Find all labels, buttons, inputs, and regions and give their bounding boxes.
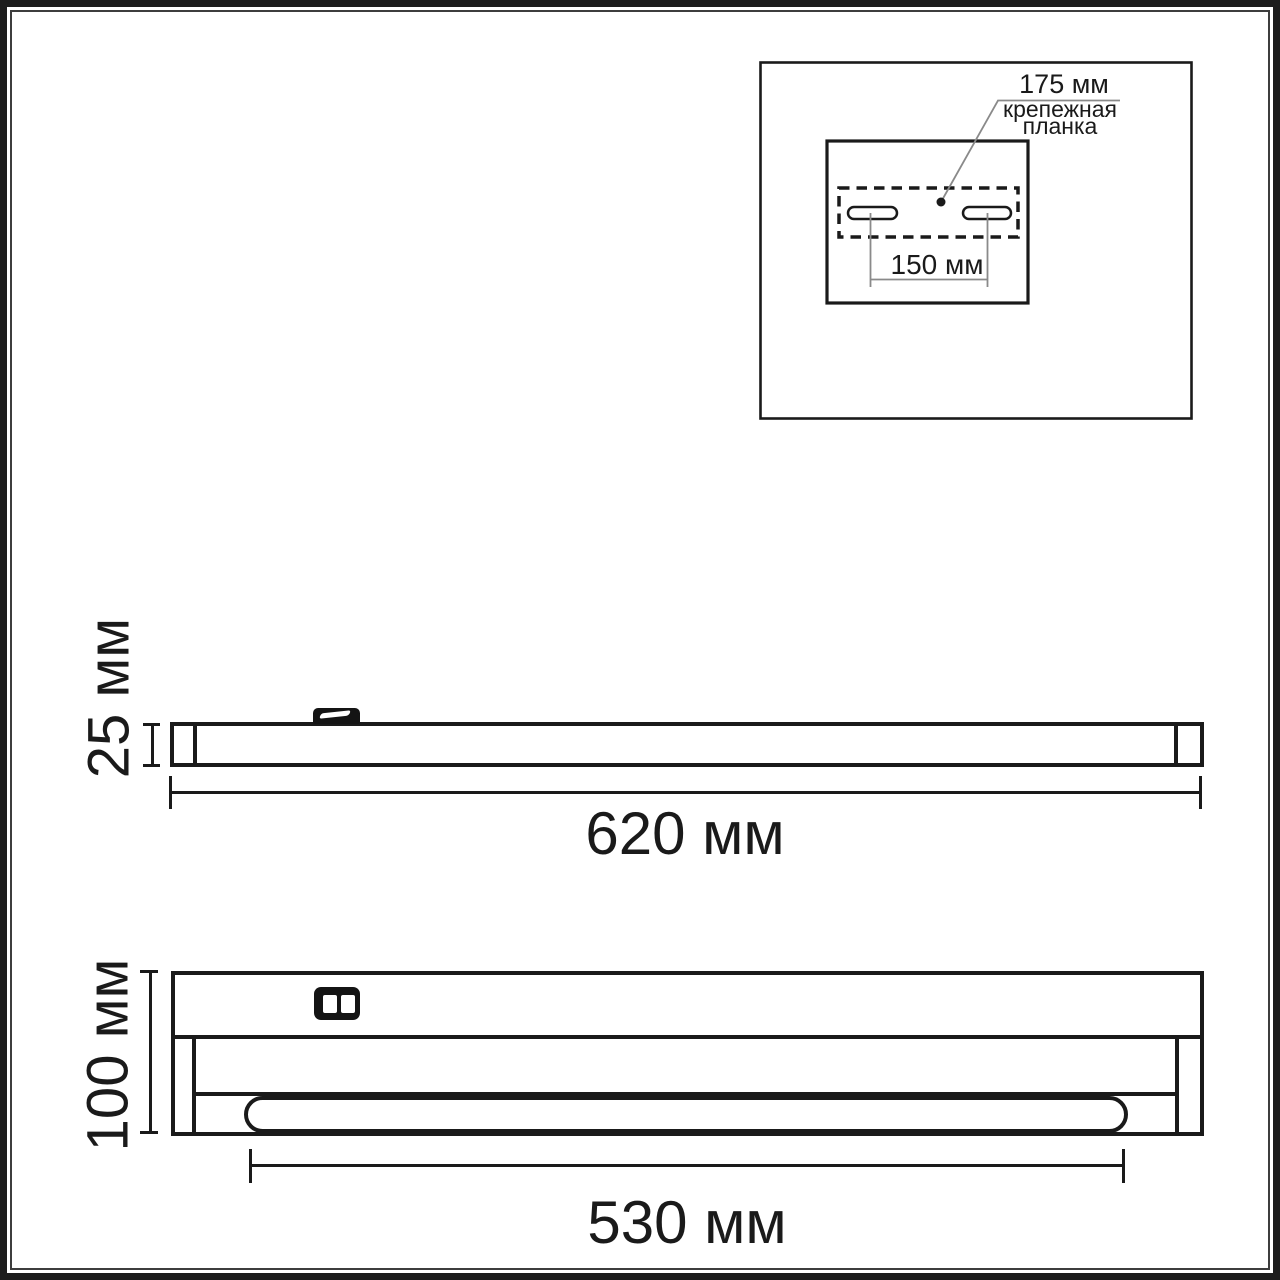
front-height-label: 100 мм xyxy=(75,959,142,1152)
dimension-line-530 xyxy=(250,1164,1124,1167)
side-view-left-endcap-line xyxy=(193,726,197,763)
switch-highlight xyxy=(319,710,351,718)
dimension-25-bottom-serif xyxy=(143,764,160,767)
bracket-label-line2: планка xyxy=(1023,113,1098,139)
dimension-620-left-tick xyxy=(169,776,172,809)
dimension-620-right-tick xyxy=(1199,776,1202,809)
slot-spacing-label: 150 мм xyxy=(857,249,1017,281)
leader-dot xyxy=(937,198,946,207)
mounting-detail-inset: 175 мм крепежная планка 150 мм xyxy=(759,61,1193,420)
side-height-label: 25 мм xyxy=(76,618,143,778)
switch-window-left xyxy=(323,995,337,1013)
side-length-label: 620 мм xyxy=(535,799,835,868)
switch-window-right xyxy=(341,995,355,1013)
side-view-switch xyxy=(313,708,360,724)
dimension-530-left-tick xyxy=(249,1149,252,1183)
front-view-body-divider-line xyxy=(173,1035,1202,1039)
dimension-line-620 xyxy=(170,791,1202,794)
dimension-100-top-serif xyxy=(140,970,158,973)
side-view-outline xyxy=(170,722,1204,767)
dimension-100-bottom-serif xyxy=(140,1131,158,1134)
front-view-right-endcap-line xyxy=(1175,1038,1179,1132)
side-view-right-endcap-line xyxy=(1174,726,1178,763)
lamp-tube xyxy=(244,1096,1128,1133)
dimension-line-100 xyxy=(149,972,152,1133)
front-view-left-endcap-line xyxy=(192,1038,196,1132)
mounting-slot-left xyxy=(848,207,897,219)
dimension-530-right-tick xyxy=(1122,1149,1125,1183)
front-view-switch xyxy=(314,987,360,1020)
dimension-25-top-serif xyxy=(143,723,160,726)
bracket-label: крепежная планка xyxy=(930,101,1190,135)
technical-drawing-page: 175 мм крепежная планка 150 мм 25 мм 620… xyxy=(0,0,1280,1280)
lamp-length-label: 530 мм xyxy=(537,1188,837,1257)
dimension-line-25 xyxy=(151,724,154,766)
